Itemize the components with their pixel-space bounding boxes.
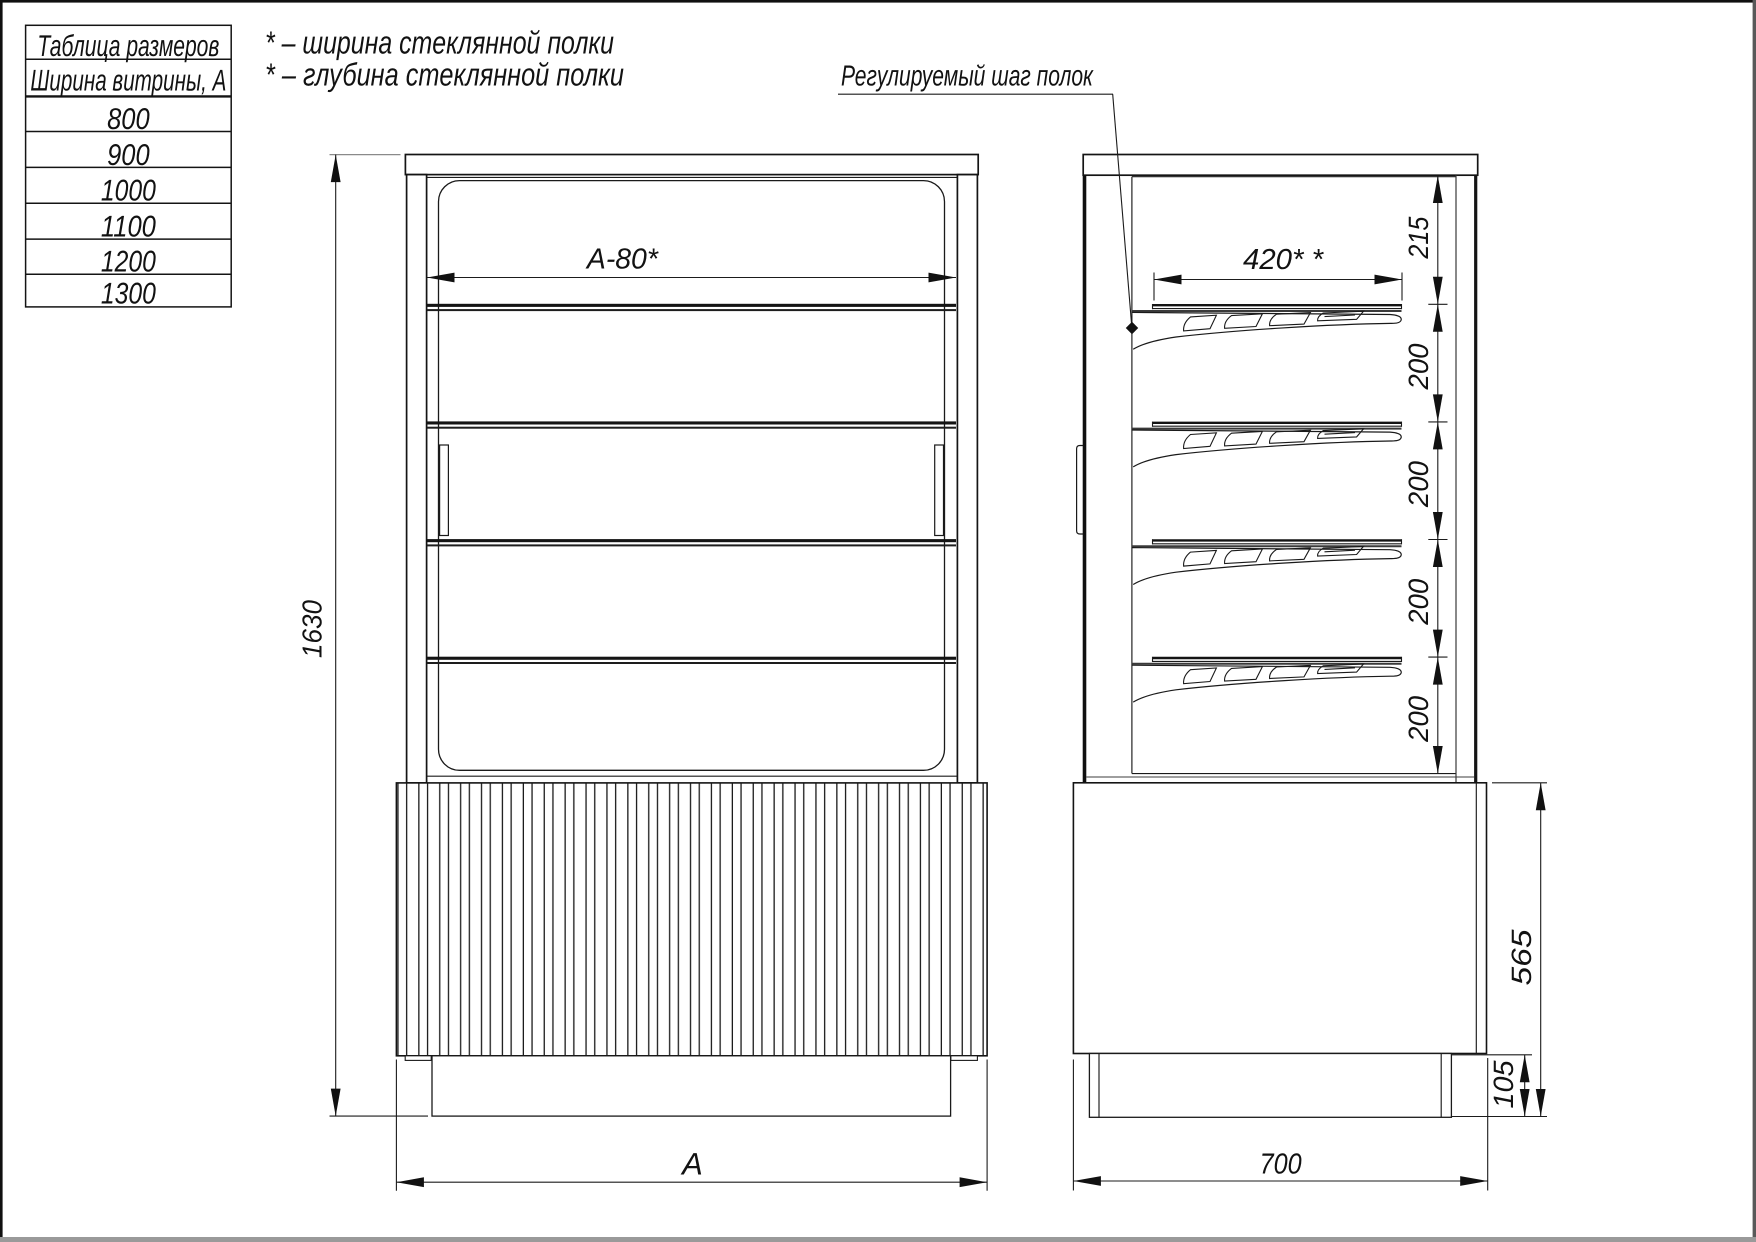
- svg-text:1300: 1300: [101, 278, 156, 311]
- svg-text:200: 200: [1403, 461, 1434, 508]
- svg-text:Ширина витрины, А: Ширина витрины, А: [30, 65, 226, 98]
- svg-text:1000: 1000: [101, 175, 156, 208]
- svg-text:420* *: 420* *: [1243, 244, 1325, 276]
- svg-text:* – ширина стеклянной полки: * – ширина стеклянной полки: [265, 24, 614, 60]
- svg-text:* – глубина стеклянной полки: * – глубина стеклянной полки: [265, 56, 624, 92]
- svg-text:215: 215: [1403, 216, 1434, 259]
- svg-text:565: 565: [1506, 929, 1537, 986]
- svg-text:А: А: [680, 1147, 703, 1182]
- svg-text:1100: 1100: [101, 210, 156, 243]
- svg-text:700: 700: [1260, 1149, 1302, 1181]
- svg-text:А-80*: А-80*: [585, 244, 660, 276]
- svg-text:900: 900: [107, 139, 150, 172]
- svg-text:200: 200: [1403, 695, 1434, 742]
- svg-text:1630: 1630: [297, 599, 328, 658]
- svg-text:Регулируемый шаг полок: Регулируемый шаг полок: [841, 61, 1094, 93]
- svg-text:105: 105: [1488, 1060, 1519, 1108]
- svg-text:800: 800: [107, 103, 150, 136]
- svg-text:1200: 1200: [101, 245, 156, 278]
- svg-text:Таблица размеров: Таблица размеров: [37, 30, 219, 63]
- svg-text:200: 200: [1403, 343, 1434, 390]
- svg-text:200: 200: [1403, 578, 1434, 625]
